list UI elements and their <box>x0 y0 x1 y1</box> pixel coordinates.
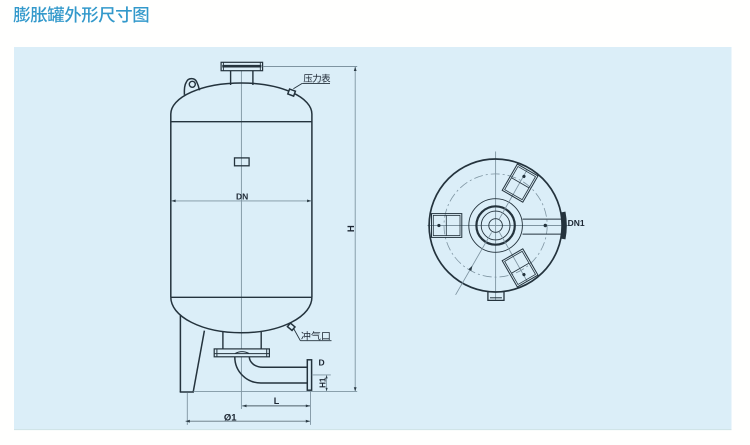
svg-text:DN1: DN1 <box>568 218 585 228</box>
svg-text:DN: DN <box>236 192 248 202</box>
svg-text:H: H <box>346 225 357 232</box>
svg-text:D: D <box>319 358 325 368</box>
svg-text:Ø1: Ø1 <box>224 412 237 423</box>
svg-text:H1: H1 <box>319 377 328 388</box>
svg-text:L: L <box>274 396 280 406</box>
